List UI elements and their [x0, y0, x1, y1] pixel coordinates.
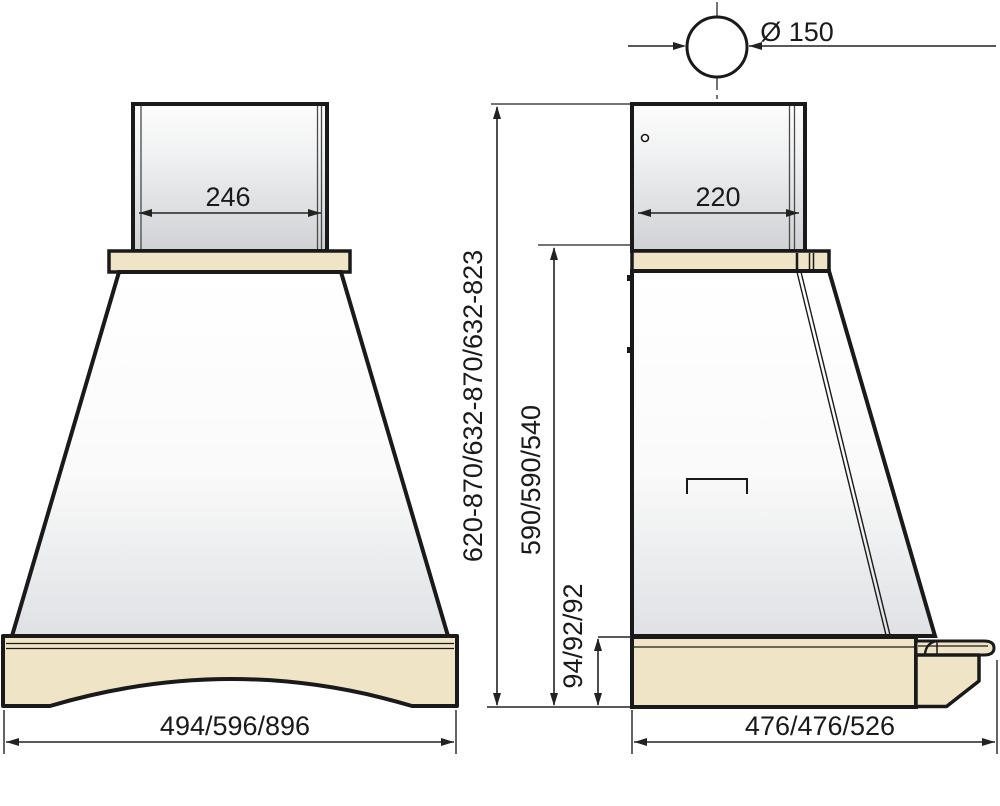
dimension-label-chimney-depth: 220: [695, 182, 740, 212]
dimension-label-base-height: 94/92/92: [558, 583, 588, 688]
arrowhead-down-icon: [594, 693, 602, 706]
arrowhead-left-icon: [6, 738, 19, 746]
base-height-dimension: 94/92/92: [558, 583, 631, 706]
hood-dimension-drawing: 246 494/596/896 Ø 1: [0, 0, 1000, 806]
wall-fixing-tab-1: [627, 275, 632, 281]
side-view: Ø 150 220: [458, 2, 997, 754]
duct-diameter-dimension: Ø 150: [628, 17, 996, 50]
technical-drawing-page: 246 494/596/896 Ø 1: [0, 0, 1000, 806]
wall-fixing-tab-2: [627, 347, 632, 353]
dimension-label-overall-height: 620-870/632-870/632-823: [458, 250, 488, 562]
duct-outlet-circle: [687, 17, 747, 77]
cornice-chamfer-block: [916, 655, 979, 707]
screw-hole-icon: [642, 135, 649, 142]
front-view: 246 494/596/896: [3, 104, 457, 754]
side-chimney: [632, 104, 805, 251]
dimension-label-duct-diameter: Ø 150: [760, 17, 834, 47]
front-trim-board: [109, 251, 350, 272]
dimension-label-overall-width: 494/596/896: [160, 711, 310, 741]
arrowhead-down-icon: [493, 693, 501, 706]
arrowhead-down-icon: [550, 693, 558, 706]
dimension-label-overall-depth: 476/476/526: [745, 711, 895, 741]
arrowhead-up-icon: [550, 247, 558, 260]
arrowhead-left-icon: [634, 738, 647, 746]
arrowhead-up-icon: [594, 638, 602, 651]
front-canopy-body: [12, 272, 448, 636]
side-trim-board: [632, 251, 829, 271]
side-canopy-body: [632, 271, 935, 636]
front-overall-width-dimension: 494/596/896: [4, 710, 456, 754]
arrowhead-up-icon: [493, 106, 501, 119]
arrowhead-right-icon: [441, 738, 454, 746]
arrowhead-right-icon: [982, 738, 995, 746]
dimension-label-body-height: 590/590/540: [516, 405, 546, 555]
arrowhead-right-icon: [673, 42, 686, 50]
front-base-panel: [3, 636, 457, 706]
dimension-label-chimney-width: 246: [205, 182, 250, 212]
front-chimney: [133, 104, 327, 251]
